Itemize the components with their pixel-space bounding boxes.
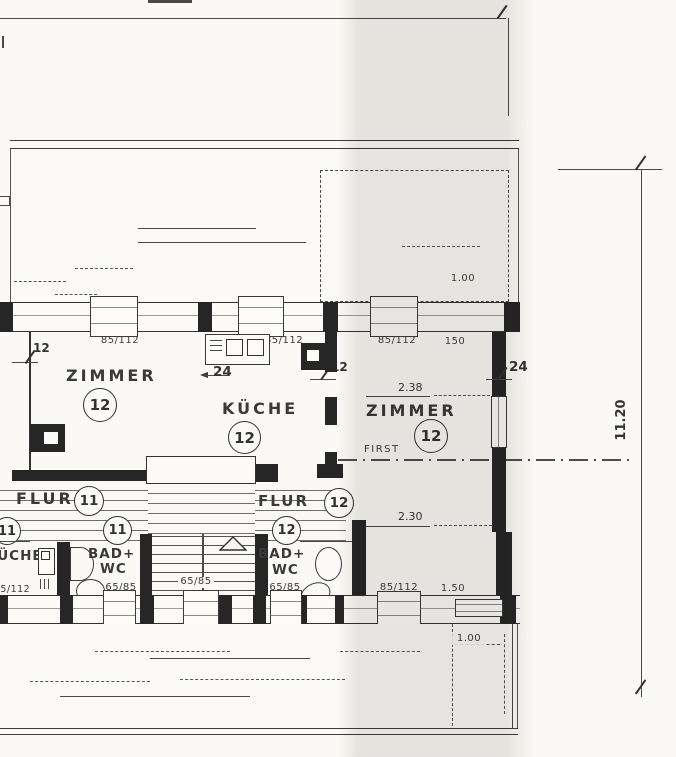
window-label: 1.50 (438, 584, 468, 595)
wall-pier (218, 595, 232, 624)
room-number-zimmer-right: 12 (414, 419, 448, 453)
toilet-right (315, 547, 342, 581)
pier-dimension: 24 (213, 364, 232, 380)
room-label-flur-12: FLUR (258, 492, 309, 510)
roof-top-fascia (10, 140, 519, 149)
right-dimension-line-h (558, 169, 662, 170)
room-number-flur-11: 11 (74, 486, 104, 516)
window-label: 85/112 (96, 336, 144, 347)
door-symbol-detail (41, 551, 50, 560)
room-label-kueche: KÜCHE (222, 399, 298, 418)
roof-dash-segment (14, 281, 66, 282)
corridor-hatch (148, 484, 255, 534)
stair-wall-right (255, 534, 268, 600)
window-label: 65/85 (104, 583, 138, 594)
hinge-mark (48, 579, 49, 589)
roof-bottom-dimension-label: 1.00 (452, 634, 486, 645)
divider-wall-segment (325, 332, 337, 372)
unit-badge-11: 11 (103, 516, 132, 545)
roof-dash-segment (30, 681, 150, 682)
corridor-pier (317, 464, 343, 478)
total-height-dimension: 11.20 (614, 388, 634, 452)
hinge-mark (40, 579, 41, 589)
window-top-1 (90, 296, 138, 337)
top-dimension-extension (508, 18, 509, 116)
right-wall-segment (492, 448, 506, 532)
burner-line (210, 350, 222, 351)
ridge-line (338, 459, 630, 461)
window-bottom-5 (455, 599, 503, 617)
unit-badge-12: 12 (272, 516, 301, 545)
room-label-bad-left-1: BAD+ (88, 546, 135, 562)
roof-dash-segment (95, 651, 230, 652)
window-label: 65/85 (268, 583, 302, 594)
room-width-dimension-bottom: 2.30 (398, 510, 423, 523)
top-dimension-line (0, 18, 506, 19)
left-margin-mark (2, 36, 4, 48)
window-label: 150 (440, 337, 470, 348)
stair-up-arrow (219, 536, 247, 551)
room-label-zimmer-left: ZIMMER (66, 366, 157, 385)
dim-dash-line (434, 525, 492, 526)
top-dimension-tick (497, 5, 508, 19)
top-edge-mark (148, 0, 192, 3)
bath-wall-line (0, 541, 30, 542)
dim-ref-line (310, 379, 336, 380)
right-wall-dimension: 24 (509, 359, 528, 375)
window-label: 65/85 (178, 577, 214, 588)
chimney-flue-opening (44, 432, 58, 444)
stair-landing (146, 456, 256, 484)
stair-wall-left (140, 534, 152, 600)
dim-ref-line (366, 396, 430, 397)
room-number-flur-12: 12 (324, 488, 354, 518)
right-wall-segment (492, 332, 506, 396)
window-label: 85/112 (378, 583, 420, 594)
wall-pier (140, 595, 154, 624)
room-label-flur-11: FLUR (16, 489, 74, 508)
roof-line-segment (150, 658, 310, 659)
roof-dash-segment (340, 651, 420, 652)
room-label-bad-left-2: WC (100, 561, 127, 577)
roof-bottom-right-edge (512, 624, 513, 728)
ridge-label: FIRST (364, 445, 400, 456)
roof-top-dimension-label: 1.00 (446, 274, 480, 285)
wall-pier (60, 595, 73, 624)
wall-pier (0, 302, 13, 332)
stove-plate (226, 339, 243, 356)
burner-line (210, 345, 222, 346)
roof-line-segment (138, 228, 256, 229)
window-label: 85/112 (0, 585, 32, 595)
corridor-wall-bar (12, 470, 148, 481)
window-top-2 (238, 296, 284, 337)
divider-wall-segment (325, 397, 337, 425)
roof-dash-segment (180, 679, 345, 680)
wall-pier (335, 595, 344, 624)
wall-pier (198, 302, 212, 332)
bath-left-wall (57, 542, 70, 600)
wall-pier (253, 595, 266, 624)
roof-bottom-boards (0, 624, 518, 728)
flue-opening (307, 350, 319, 361)
window-top-3 (370, 296, 418, 337)
window-label: 85/112 (374, 336, 420, 347)
room-number-zimmer-left: 12 (83, 388, 117, 422)
room-number-kueche: 12 (228, 421, 261, 454)
roof-dormer-dashed-outline (320, 170, 509, 302)
wall-thickness-dimension: 12 (33, 341, 50, 355)
bath-right-wall (352, 520, 366, 606)
roof-line-segment (60, 696, 250, 697)
wall-pier (0, 595, 8, 624)
dim-dash-line (434, 395, 490, 396)
room-width-dimension-top: 2.38 (398, 381, 423, 394)
hinge-mark (44, 579, 45, 589)
dim-ref-line (366, 526, 430, 527)
window-right-wall (491, 396, 507, 448)
stove-plate (247, 339, 264, 356)
corridor-pier (255, 464, 278, 482)
room-label-kueche-11: KÜCHE (0, 548, 43, 564)
roof-dash-vertical (504, 634, 505, 714)
wall-pier (323, 302, 338, 332)
roof-bottom-fascia (0, 728, 518, 735)
burner-line (210, 340, 222, 341)
roof-dash-segment (402, 246, 480, 247)
right-dimension-line-v (641, 169, 642, 697)
roof-line-segment (138, 242, 306, 243)
window-bottom-4 (377, 591, 421, 628)
floor-plan-scan: 11.20 1.00 85/112 85/112 85/112 150 12 Z… (0, 0, 676, 757)
roof-dash-segment (75, 268, 133, 269)
wall-pier (504, 302, 520, 332)
room-label-bad-right-2: WC (272, 562, 299, 578)
room-label-zimmer-right: ZIMMER (366, 401, 457, 420)
room-label-bad-right-1: BAD+ (258, 546, 305, 562)
roof-dash-segment (55, 294, 97, 295)
